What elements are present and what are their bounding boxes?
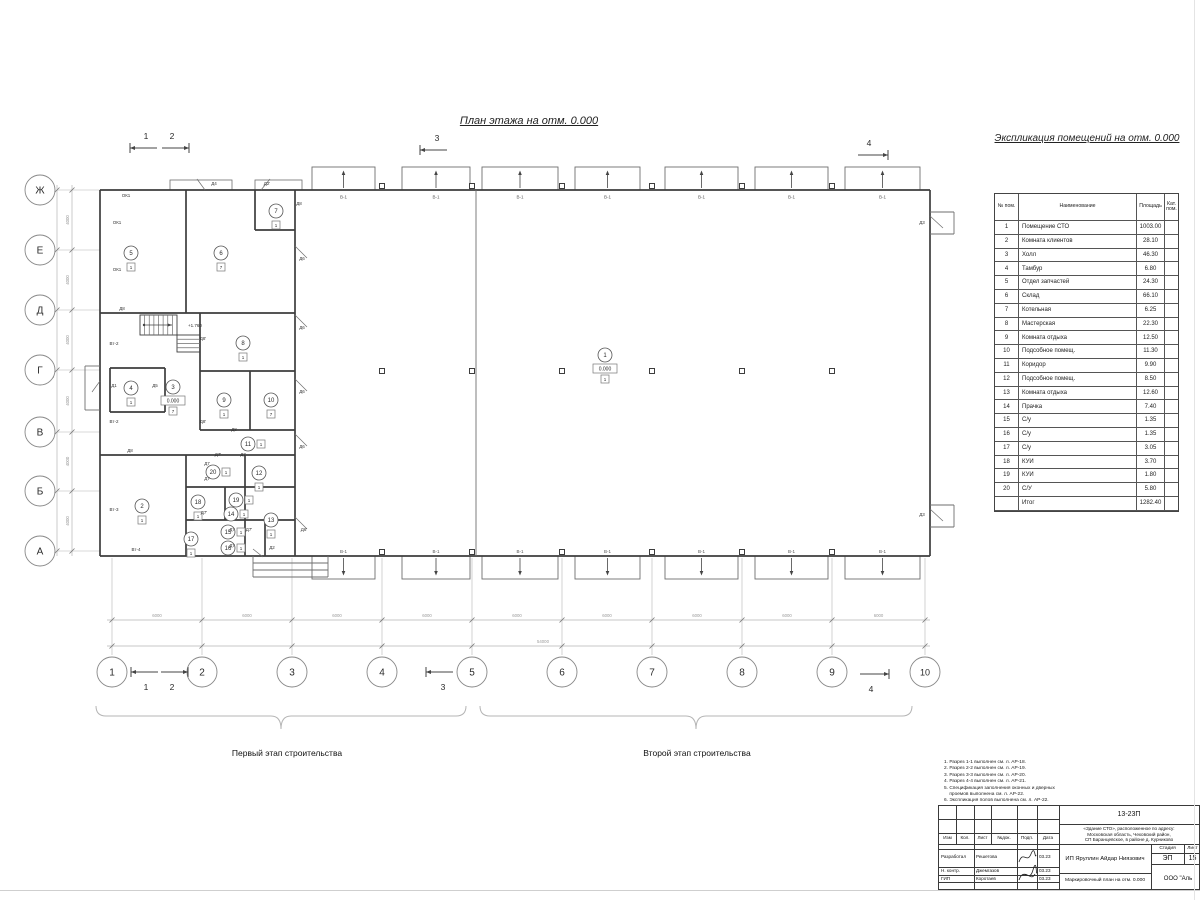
table-cell-name: Мастерская (1019, 318, 1137, 332)
table-cell-area: 6.25 (1137, 304, 1165, 318)
table-cell-area: 12.60 (1137, 387, 1165, 401)
door-label: Д4 (211, 181, 217, 186)
axis-bubble-number: 9 (829, 668, 835, 679)
dim-value: 4000 (65, 456, 70, 466)
title-block: ИзмКол.Лист№док.Подп.ДатаРазработалРешет… (938, 805, 1200, 890)
table-cell-cat (1165, 262, 1178, 276)
table-cell-area: 6.80 (1137, 262, 1165, 276)
titleblock-line (939, 882, 1059, 883)
axis-bubble-letter: Е (37, 246, 44, 257)
drawing-title: Маркировочный план на отм. 0.000 (1059, 878, 1151, 884)
table-cell-name: С/у (1019, 442, 1137, 456)
gate-label: В-1 (340, 549, 348, 554)
table-cell-name: КУИ (1019, 456, 1137, 470)
section-arrow-head (130, 146, 135, 150)
titleblock-line (1059, 873, 1151, 874)
door-label: Д6 (299, 389, 305, 394)
axis-bubble-number: 3 (289, 668, 295, 679)
table-cell-name: Отдел запчастей (1019, 276, 1137, 290)
table-cell-cat (1165, 497, 1178, 511)
table-cell-area: 12.50 (1137, 331, 1165, 345)
titleblock-col-header: Подп. (1018, 835, 1036, 840)
stage-one-label: Первый этап строительства (127, 748, 447, 758)
door-label: Д7 (204, 461, 210, 466)
door-label: Д7 (229, 543, 235, 548)
axis-bubble-number: 1 (109, 668, 115, 679)
table-cell-cat (1165, 469, 1178, 483)
room-number: 17 (188, 537, 195, 543)
titleblock-col-header: Дата (1039, 835, 1057, 840)
table-cell-cat (1165, 249, 1178, 263)
table-cell-name: Комната отдыха (1019, 387, 1137, 401)
gate-label: В-1 (604, 195, 612, 200)
table-cell-name: Коридор (1019, 359, 1137, 373)
table-cell-name: С/у (1019, 428, 1137, 442)
table-cell-cat (1165, 414, 1178, 428)
gate-label: В-1 (516, 549, 524, 554)
table-cell-area: 1282.40 (1137, 497, 1165, 511)
dim-value: 6000 (782, 613, 792, 618)
table-cell-name: Прачка (1019, 400, 1137, 414)
dim-value: 4000 (65, 275, 70, 285)
door-label: Вт-2 (110, 341, 119, 346)
stair-arrow-dot (143, 324, 145, 326)
table-cell-num: 3 (995, 249, 1019, 263)
table-cell-name: Холл (1019, 249, 1137, 263)
door-label: ОК1 (113, 220, 122, 225)
column (740, 369, 745, 374)
table-cell-area: 1.80 (1137, 469, 1165, 483)
table-cell-cat (1165, 276, 1178, 290)
door-label: Д8' (200, 336, 207, 341)
table-header-cell: № пом. (995, 194, 1019, 221)
table-cell-num: 2 (995, 235, 1019, 249)
doc-number: 13-23П (1059, 811, 1199, 819)
dim-total: 54000 (537, 639, 550, 644)
door-swing (930, 509, 943, 521)
elevation-value: 0.000 (599, 367, 612, 373)
titleblock-line (1017, 806, 1018, 889)
door-label: Д8 (127, 448, 133, 453)
axis-bubble-letter: А (37, 547, 44, 558)
column (740, 184, 745, 189)
dim-value: 6000 (874, 613, 884, 618)
gate-label: В-1 (432, 549, 440, 554)
column (380, 184, 385, 189)
titleblock-date: 03.23 (1039, 854, 1051, 859)
table-cell-num: 20 (995, 483, 1019, 497)
table-cell-num: 13 (995, 387, 1019, 401)
dim-value: 4000 (65, 516, 70, 526)
table-cell-area: 22.30 (1137, 318, 1165, 332)
door-label: Вт-3 (110, 507, 119, 512)
table-cell-cat (1165, 290, 1178, 304)
table-cell-cat (1165, 235, 1178, 249)
door-label: ОК1 (113, 267, 122, 272)
table-cell-num: 14 (995, 400, 1019, 414)
table-cell-name: Комната отдыха (1019, 331, 1137, 345)
door-label: Д7' (201, 510, 208, 515)
section-number: 2 (170, 131, 175, 141)
table-cell-num: 16 (995, 428, 1019, 442)
sheet-right-edge (1194, 0, 1195, 900)
stage-label: Стадия (1151, 846, 1184, 852)
table-cell-area: 1003.00 (1137, 221, 1165, 235)
door-label: Д7 (204, 476, 210, 481)
table-cell-area: 46.30 (1137, 249, 1165, 263)
door-label: Д8 (296, 201, 302, 206)
table-cell-cat (1165, 400, 1178, 414)
gate-label: В-1 (879, 549, 887, 554)
room-number: 11 (245, 442, 252, 448)
table-cell-cat (1165, 483, 1178, 497)
table-cell-cat (1165, 373, 1178, 387)
table-cell-area: 66.10 (1137, 290, 1165, 304)
table-cell-num: 18 (995, 456, 1019, 470)
titleblock-col-header: Кол. (956, 835, 974, 840)
titleblock-line (1151, 864, 1200, 865)
column (830, 369, 835, 374)
column (560, 184, 565, 189)
table-cell-num: 10 (995, 345, 1019, 359)
column (470, 369, 475, 374)
axis-bubble-letter: Г (37, 366, 43, 377)
stage-brace (480, 706, 912, 729)
drawing-notes: 1. Разрез 1-1 выполнен см. л. АР-18.2. Р… (944, 760, 1055, 805)
titleblock-date: 03.23 (1039, 868, 1051, 873)
room-number: 14 (228, 512, 235, 518)
table-cell-area: 24.30 (1137, 276, 1165, 290)
section-number: 4 (867, 138, 872, 148)
table-cell-name: Комната клиентов (1019, 235, 1137, 249)
stage-two-label: Второй этап строительства (537, 748, 857, 758)
column (560, 369, 565, 374)
table-cell-name: Тамбур (1019, 262, 1137, 276)
table-cell-area: 1.35 (1137, 414, 1165, 428)
table-cell-cat (1165, 318, 1178, 332)
door-label: Вт-2 (110, 419, 119, 424)
section-number: 3 (435, 133, 440, 143)
table-cell-num (995, 497, 1019, 511)
door-label: Д3 (919, 512, 925, 517)
gate-label: В-1 (604, 549, 612, 554)
titleblock-name: Коротаев (976, 876, 996, 881)
table-cell-num: 7 (995, 304, 1019, 318)
table-cell-name: Склад (1019, 290, 1137, 304)
dim-value: 6000 (512, 613, 522, 618)
table-cell-area: 7.40 (1137, 400, 1165, 414)
column (470, 184, 475, 189)
table-cell-area: 9.90 (1137, 359, 1165, 373)
column (650, 369, 655, 374)
door-label: Д3 (919, 220, 925, 225)
titleblock-col-header: Изм (939, 835, 957, 840)
axis-bubble-number: 5 (469, 668, 475, 679)
titleblock-line (939, 833, 1059, 834)
table-cell-num: 1 (995, 221, 1019, 235)
column (380, 369, 385, 374)
door-label: Д7' (246, 527, 253, 532)
column (560, 550, 565, 555)
column (380, 550, 385, 555)
dim-value: 4000 (65, 335, 70, 345)
titleblock-name: Джемгазов (976, 868, 999, 873)
section-arrow-head (884, 672, 889, 676)
column (740, 550, 745, 555)
table-cell-area: 3.70 (1137, 456, 1165, 470)
door-label: Вт-4 (132, 547, 141, 552)
titleblock-role: Н. контр. (941, 868, 960, 873)
table-cell-num: 15 (995, 414, 1019, 428)
section-number: 2 (170, 682, 175, 692)
door-label: Д6 (299, 325, 305, 330)
table-cell-area: 3.05 (1137, 442, 1165, 456)
table-cell-name: КУИ (1019, 469, 1137, 483)
table-cell-name: Подсобное помещ. (1019, 373, 1137, 387)
room-schedule-table: № пом.НаименованиеПлощадьКат. пом.1Помещ… (994, 193, 1179, 512)
axis-bubble-letter: Ж (35, 186, 45, 197)
section-arrow-head (426, 670, 431, 674)
table-cell-cat (1165, 387, 1178, 401)
gate-label: В-1 (698, 549, 706, 554)
stage-value: ЭП (1151, 855, 1184, 863)
room-number: 13 (268, 518, 275, 524)
gate-label: В-1 (340, 195, 348, 200)
axis-bubble-number: 10 (920, 668, 930, 678)
door-label: Д6' (301, 527, 308, 532)
titleblock-col-header: №док. (995, 835, 1013, 840)
table-cell-cat (1165, 304, 1178, 318)
room-number: 10 (268, 398, 275, 404)
section-number: 4 (869, 684, 874, 694)
table-header-cell: Площадь (1137, 194, 1165, 221)
table-cell-num: 8 (995, 318, 1019, 332)
door-label: Д6 (299, 256, 305, 261)
gate-label: В-1 (788, 195, 796, 200)
table-cell-num: 4 (995, 262, 1019, 276)
table-cell-name: Подсобное помещ. (1019, 345, 1137, 359)
table-cell-num: 19 (995, 469, 1019, 483)
titleblock-role: Разработал (941, 854, 966, 859)
axis-bubble-number: 2 (199, 668, 205, 679)
dim-value: 4000 (65, 215, 70, 225)
axis-bubble-number: 4 (379, 668, 385, 679)
table-cell-area: 8.50 (1137, 373, 1165, 387)
table-header-cell: Кат. пом. (1165, 194, 1178, 221)
dim-value: 6000 (332, 613, 342, 618)
dim-value: 6000 (152, 613, 162, 618)
sheet-value: 15 (1184, 855, 1200, 863)
titleblock-line (1059, 824, 1200, 825)
section-arrow-head (131, 670, 136, 674)
section-arrow-head (184, 146, 189, 150)
section-number: 1 (144, 682, 149, 692)
door-label: Д2' (264, 181, 271, 186)
titleblock-line (939, 844, 1199, 845)
axis-bubble-number: 7 (649, 668, 655, 679)
titleblock-date: 03.23 (1039, 876, 1051, 881)
sheet-bottom-edge (0, 890, 1200, 891)
room-number: 20 (210, 470, 217, 476)
table-cell-cat (1165, 221, 1178, 235)
titleblock-role: ГИП (941, 876, 950, 881)
door-label: Д5 (152, 383, 158, 388)
object-address: «Здание СТО», расположенное по адресу: М… (1060, 826, 1198, 843)
gate-label: В-1 (516, 195, 524, 200)
door-label: Д6 (299, 444, 305, 449)
table-cell-name: С/У (1019, 483, 1137, 497)
table-cell-cat (1165, 428, 1178, 442)
door-label: Д1 (111, 383, 117, 388)
axis-bubble-number: 6 (559, 668, 565, 679)
door-swing (930, 216, 943, 228)
column (470, 550, 475, 555)
door-label: Д7 (229, 527, 235, 532)
titleblock-line (1151, 853, 1200, 854)
dim-value: 6000 (242, 613, 252, 618)
table-cell-name: Итог (1019, 497, 1137, 511)
table-cell-cat (1165, 345, 1178, 359)
door-label: Д8' (200, 419, 207, 424)
door-label: Д7' (215, 452, 222, 457)
gate-label: В-1 (698, 195, 706, 200)
door-label: ОК1 (122, 193, 131, 198)
room-number: 18 (195, 500, 202, 506)
titleblock-line (939, 819, 1059, 820)
table-cell-name: Помещение СТО (1019, 221, 1137, 235)
stair-arrow-head (168, 323, 173, 326)
section-number: 3 (441, 682, 446, 692)
table-cell-num: 9 (995, 331, 1019, 345)
axis-bubble-number: 8 (739, 668, 745, 679)
table-cell-cat (1165, 456, 1178, 470)
door-label: Д8 (119, 306, 125, 311)
titleblock-name: Решетова (976, 854, 997, 859)
section-arrow-head (883, 153, 888, 157)
titleblock-line (974, 806, 975, 889)
dim-value: 6000 (422, 613, 432, 618)
titleblock-col-header: Лист (974, 835, 992, 840)
table-cell-area: 11.30 (1137, 345, 1165, 359)
table-cell-cat (1165, 359, 1178, 373)
door-label: Д2 (269, 545, 275, 550)
table-cell-num: 5 (995, 276, 1019, 290)
door-label: Д8 (231, 427, 237, 432)
gate-label: В-1 (432, 195, 440, 200)
dim-value: 6000 (602, 613, 612, 618)
gate-label: В-1 (879, 195, 887, 200)
gate-label: В-1 (788, 549, 796, 554)
column (830, 184, 835, 189)
note-line: 6. Экспликация полов выполнена см. л. АР… (944, 798, 1055, 804)
column (650, 550, 655, 555)
titleblock-line (939, 849, 1059, 850)
dim-value: 4000 (65, 396, 70, 406)
table-cell-num: 12 (995, 373, 1019, 387)
column (650, 184, 655, 189)
table-cell-cat (1165, 331, 1178, 345)
axis-bubble-letter: Д (37, 306, 44, 317)
table-cell-num: 17 (995, 442, 1019, 456)
table-cell-area: 28.10 (1137, 235, 1165, 249)
room-number: 19 (233, 498, 240, 504)
elevation-value: 0.000 (167, 399, 180, 405)
table-cell-name: Котельная (1019, 304, 1137, 318)
stage-brace (96, 706, 466, 729)
dim-value: 6000 (692, 613, 702, 618)
sheet-label: Лист (1184, 846, 1200, 852)
table-cell-num: 11 (995, 359, 1019, 373)
door-label: Д7 (240, 452, 246, 457)
table-header-cell: Наименование (1019, 194, 1137, 221)
axis-bubble-letter: Б (37, 487, 44, 498)
door-swing (92, 381, 100, 392)
column (830, 550, 835, 555)
axis-bubble-letter: В (37, 428, 44, 439)
titleblock-line (1037, 806, 1038, 889)
table-cell-num: 6 (995, 290, 1019, 304)
section-arrow-head (420, 148, 425, 152)
table-cell-name: С/у (1019, 414, 1137, 428)
table-cell-cat (1165, 442, 1178, 456)
client-name: ИП Яруллин Айдар Ниязович (1059, 856, 1151, 863)
table-cell-area: 5.80 (1137, 483, 1165, 497)
section-number: 1 (144, 131, 149, 141)
table-cell-area: 1.35 (1137, 428, 1165, 442)
room-number: 12 (256, 471, 263, 477)
stair-elevation: +1.760 (188, 323, 202, 328)
